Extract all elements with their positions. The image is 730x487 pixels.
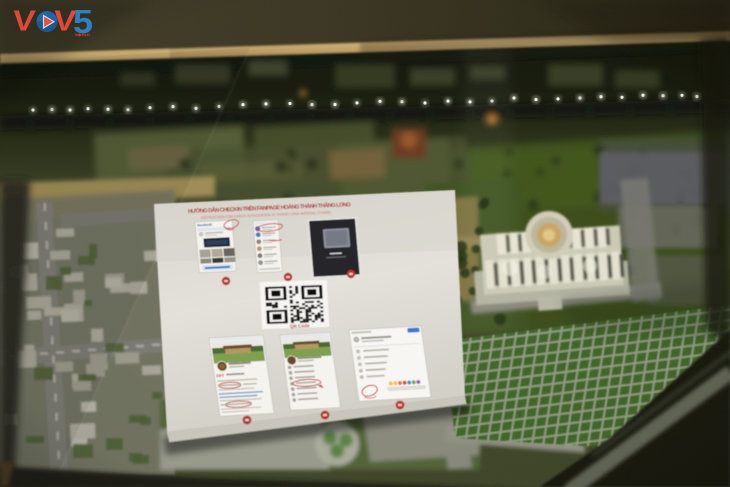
svg-text:V: V xyxy=(11,5,36,37)
svg-text:facebook: facebook xyxy=(197,223,212,228)
svg-text:QR Code: QR Code xyxy=(290,323,310,329)
svg-text:W▶RLD: W▶RLD xyxy=(75,32,90,37)
svg-text:FPT: FPT xyxy=(216,373,225,378)
